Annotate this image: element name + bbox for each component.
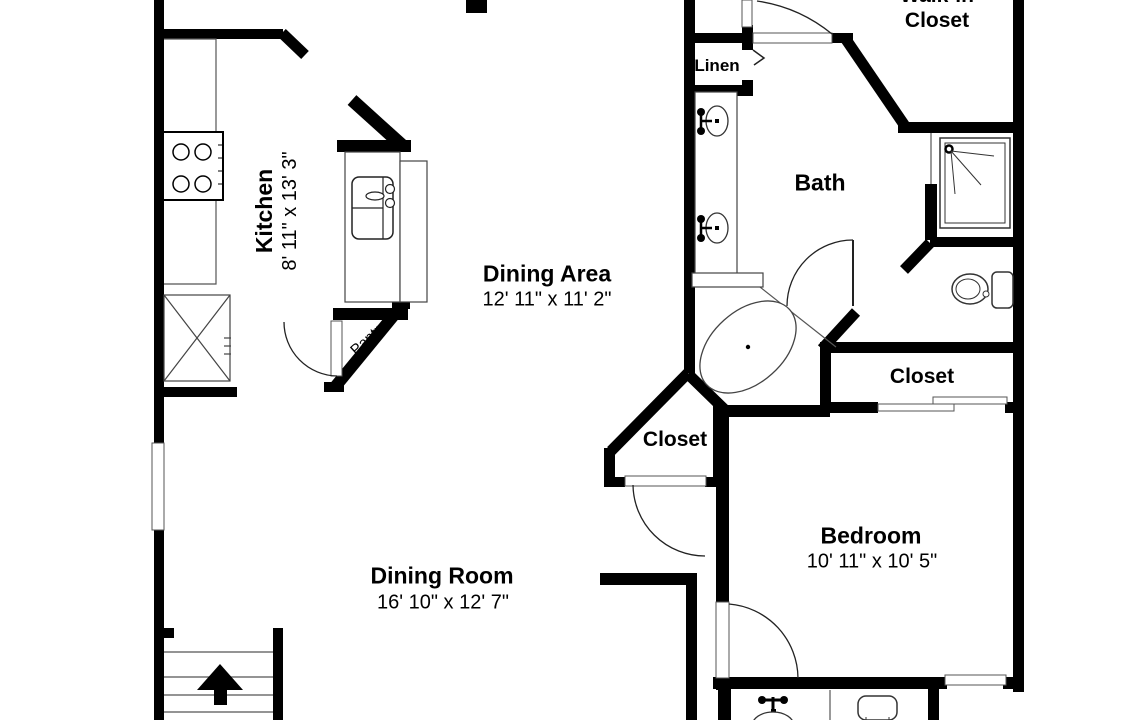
kitchen-dims: 8' 11" x 13' 3" [278, 151, 303, 270]
door-leaf [716, 602, 729, 678]
window [152, 443, 164, 530]
sink-icon [752, 696, 794, 720]
room-label-walk-in: Walk-in [900, 0, 974, 8]
room-label-walk-in-closet: Closet [905, 9, 969, 33]
room-dims-bedroom: 10' 11" x 10' 5" [807, 551, 937, 574]
door-leaf [331, 321, 342, 376]
refrigerator-icon [164, 295, 231, 381]
stove-icon [163, 132, 223, 200]
room-dims-dining-room: 16' 10" x 12' 7" [377, 592, 509, 615]
bypass-closet-door [933, 397, 1007, 404]
doorway [625, 476, 706, 486]
room-dims-dining-area: 12' 11" x 11' 2" [483, 289, 612, 312]
door-leaf [742, 0, 752, 27]
room-label-hall-closet: Closet [643, 428, 707, 452]
toilet-icon [858, 696, 897, 720]
toilet-icon [952, 272, 1013, 308]
linen-door-mark [753, 50, 764, 65]
floor-plan: Kitchen 8' 11" x 13' 3" Dining Area 12' … [0, 0, 1135, 720]
kitchen-sink-icon [345, 152, 427, 302]
window [945, 675, 1006, 685]
room-label-bedroom: Bedroom [821, 523, 922, 550]
room-label-dining-room: Dining Room [370, 563, 513, 590]
room-label-dining-area: Dining Area [483, 261, 611, 288]
doorway [753, 33, 832, 43]
floor-plan-drawing [0, 0, 1135, 720]
stairs-up-icon [164, 652, 273, 712]
room-label-bedroom-closet: Closet [890, 365, 954, 389]
bypass-closet-door [878, 404, 954, 411]
counter-lines [164, 39, 931, 720]
room-label-bath: Bath [794, 170, 845, 197]
room-label-kitchen: Kitchen 8' 11" x 13' 3" [251, 151, 303, 270]
double-vanity-sink-icon [692, 92, 763, 287]
shower-icon [940, 138, 1010, 228]
kitchen-name: Kitchen [251, 151, 278, 270]
room-label-linen: Linen [694, 56, 739, 76]
